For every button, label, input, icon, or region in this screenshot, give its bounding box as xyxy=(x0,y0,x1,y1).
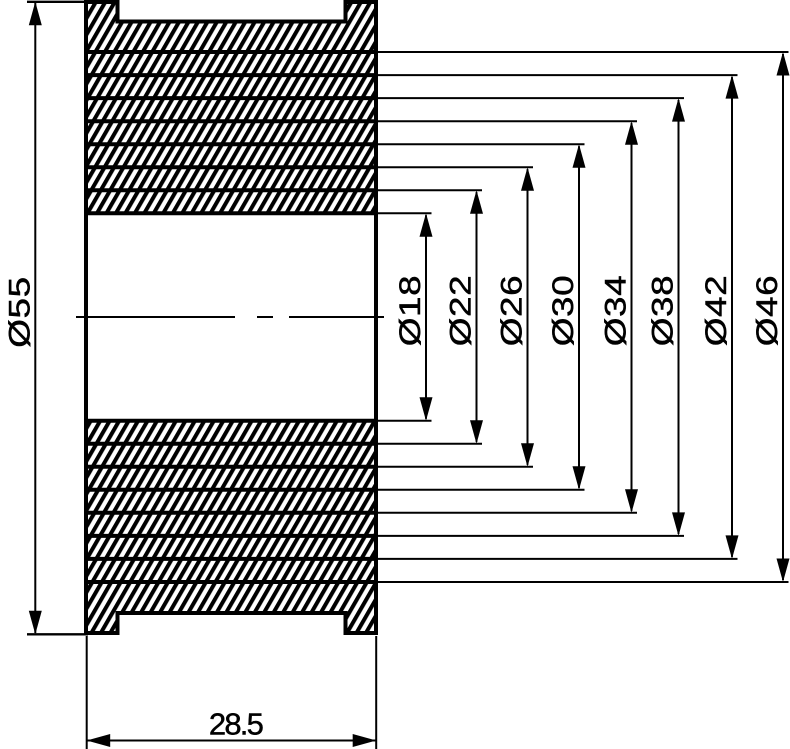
svg-text:Ø26: Ø26 xyxy=(496,275,529,347)
svg-text:Ø18: Ø18 xyxy=(394,275,427,347)
svg-text:Ø55: Ø55 xyxy=(4,276,37,348)
svg-text:Ø30: Ø30 xyxy=(547,275,580,347)
svg-text:28.5: 28.5 xyxy=(209,707,263,742)
svg-text:Ø38: Ø38 xyxy=(647,275,680,347)
svg-text:Ø22: Ø22 xyxy=(445,275,478,347)
svg-text:Ø34: Ø34 xyxy=(600,275,633,347)
svg-text:Ø42: Ø42 xyxy=(700,275,733,347)
svg-text:Ø46: Ø46 xyxy=(751,275,784,347)
